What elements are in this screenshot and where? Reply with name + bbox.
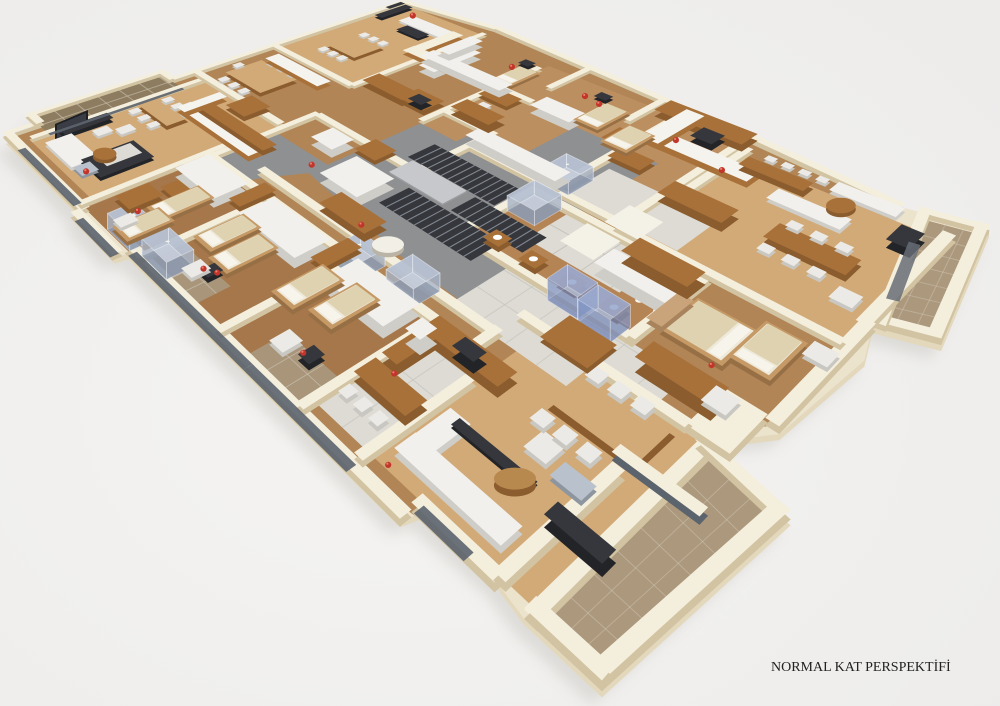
svg-text:NORMAL KAT PERSPEKTİFİ: NORMAL KAT PERSPEKTİFİ: [771, 659, 951, 675]
